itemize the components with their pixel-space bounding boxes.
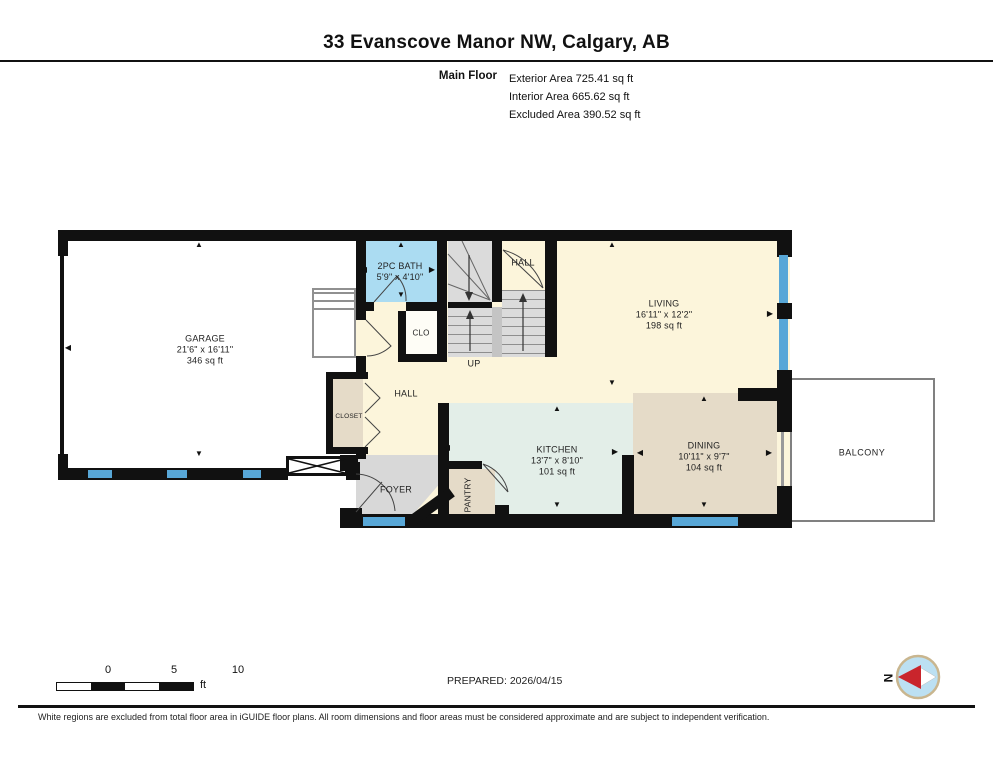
room-name: LIVING	[636, 299, 693, 310]
page-title: 33 Evanscove Manor NW, Calgary, AB	[0, 32, 993, 54]
stair-winder	[448, 241, 492, 302]
shaft-box	[286, 456, 348, 476]
dimension-arrow-icon: ▼	[698, 501, 710, 509]
scale-segment	[91, 683, 125, 690]
scale-bar-segments	[56, 682, 194, 691]
room-label-pantry: PANTRY	[463, 478, 474, 513]
wall-segment	[448, 302, 492, 308]
room-name: UP	[468, 359, 481, 370]
room-label-closet: CLOSET	[335, 413, 362, 421]
room-label-dining: DINING 10'11" x 9'7" 104 sq ft	[678, 441, 729, 474]
room-label-living: LIVING 16'11" x 12'2" 198 sq ft	[636, 299, 693, 332]
scale-segment	[125, 683, 159, 690]
stair-flight-right	[502, 290, 545, 357]
wall-segment	[777, 303, 792, 319]
floor-plan-page: 33 Evanscove Manor NW, Calgary, AB Main …	[0, 0, 993, 768]
wall-segment	[777, 486, 792, 528]
wall-segment	[777, 230, 792, 257]
room-name: HALL	[511, 258, 534, 269]
excluded-area-text: Excluded Area 390.52 sq ft	[509, 106, 640, 124]
balcony-sliding-door	[781, 432, 784, 486]
room-label-hall-upper: HALL	[511, 258, 534, 269]
floor-label: Main Floor	[377, 70, 497, 82]
scale-segment	[159, 683, 193, 690]
header-divider	[0, 60, 993, 62]
wall-segment	[326, 372, 333, 454]
room-name: FOYER	[380, 485, 412, 496]
exterior-area-text: Exterior Area 725.41 sq ft	[509, 70, 640, 88]
dimension-arrow-icon: ▼	[395, 291, 407, 299]
prepared-date: PREPARED: 2026/04/15	[447, 675, 562, 687]
wall-segment	[60, 254, 64, 458]
room-label-bath: 2PC BATH 5'9" x 4'10"	[377, 261, 424, 283]
dimension-arrow-icon: ▲	[606, 241, 618, 249]
wall-segment	[622, 455, 634, 522]
wall-segment	[777, 370, 792, 432]
wall-segment	[492, 241, 502, 302]
room-area: 198 sq ft	[636, 321, 693, 332]
room-name: GARAGE	[177, 334, 234, 345]
room-label-kitchen: KITCHEN 13'7" x 8'10" 101 sq ft	[531, 445, 583, 478]
area-summary: Exterior Area 725.41 sq ft Interior Area…	[509, 70, 640, 124]
dimension-arrow-icon: ▼	[193, 450, 205, 458]
dimension-arrow-icon: ▶	[764, 310, 776, 318]
room-label-garage: GARAGE 21'6" x 16'11" 346 sq ft	[177, 334, 234, 367]
dimension-arrow-icon: ▼	[606, 379, 618, 387]
scale-unit: ft	[200, 679, 206, 691]
room-name: CLO	[412, 328, 429, 339]
dimension-arrow-icon: ▲	[193, 241, 205, 249]
scale-tick: 5	[166, 664, 182, 676]
room-dims: 5'9" x 4'10"	[377, 272, 424, 283]
dimension-arrow-icon: ▼	[551, 501, 563, 509]
room-name: PANTRY	[463, 478, 474, 513]
dimension-arrow-icon: ▲	[551, 405, 563, 413]
room-name: 2PC BATH	[377, 261, 424, 272]
wall-segment	[58, 230, 792, 241]
wall-segment	[545, 241, 557, 357]
stair-divider	[492, 307, 502, 357]
room-name: BALCONY	[839, 448, 886, 459]
wall-segment	[340, 455, 358, 471]
room-label-clo: CLO	[412, 328, 429, 339]
wall-segment	[495, 505, 509, 528]
wall-segment	[58, 230, 68, 256]
room-dims: 16'11" x 12'2"	[636, 310, 693, 321]
window-segment	[779, 319, 788, 370]
room-name: KITCHEN	[531, 445, 583, 456]
window-segment	[243, 470, 261, 478]
room-dims: 10'11" x 9'7"	[678, 452, 729, 463]
room-name: DINING	[678, 441, 729, 452]
wall-segment	[437, 241, 447, 362]
room-dims: 13'7" x 8'10"	[531, 456, 583, 467]
window-segment	[167, 470, 187, 478]
room-area: 101 sq ft	[531, 467, 583, 478]
dimension-arrow-icon: ◀	[634, 449, 646, 457]
dimension-arrow-icon: ◀	[441, 444, 453, 452]
window-segment	[779, 255, 788, 303]
stair-flight-left	[448, 307, 492, 357]
dimension-arrow-icon: ◀	[548, 310, 560, 318]
garage-steps-treads	[314, 292, 354, 316]
interior-area-text: Interior Area 665.62 sq ft	[509, 88, 640, 106]
window-segment	[88, 470, 112, 478]
dimension-arrow-icon: ▶	[763, 449, 775, 457]
label-stairs-up: UP	[468, 359, 481, 370]
dimension-arrow-icon: ▶	[426, 266, 438, 274]
scale-tick: 10	[230, 664, 246, 676]
dimension-arrow-icon: ◀	[358, 266, 370, 274]
dimension-arrow-icon: ◀	[62, 344, 74, 352]
dimension-arrow-icon: ▲	[395, 241, 407, 249]
scale-segment	[57, 683, 91, 690]
dimension-arrow-icon: ▶	[609, 448, 621, 456]
north-letter: N	[881, 674, 895, 683]
room-label-balcony: BALCONY	[839, 448, 886, 459]
scale-tick: 0	[100, 664, 116, 676]
room-label-foyer: FOYER	[380, 485, 412, 496]
footer-divider	[18, 705, 975, 708]
room-name: HALL	[394, 389, 417, 400]
room-dims: 21'6" x 16'11"	[177, 345, 234, 356]
room-name: CLOSET	[335, 413, 362, 421]
compass-icon	[897, 656, 939, 698]
room-label-hall-main: HALL	[394, 389, 417, 400]
room-area: 346 sq ft	[177, 356, 234, 367]
wall-segment	[356, 302, 374, 311]
room-area: 104 sq ft	[678, 463, 729, 474]
wall-segment	[398, 354, 447, 362]
wall-segment	[438, 403, 449, 463]
disclaimer-text: White regions are excluded from total fl…	[38, 712, 968, 722]
dimension-arrow-icon: ▲	[698, 395, 710, 403]
window-segment	[363, 517, 405, 526]
scale-bar: 0 5 10 ft	[50, 664, 230, 696]
window-segment	[672, 517, 738, 526]
